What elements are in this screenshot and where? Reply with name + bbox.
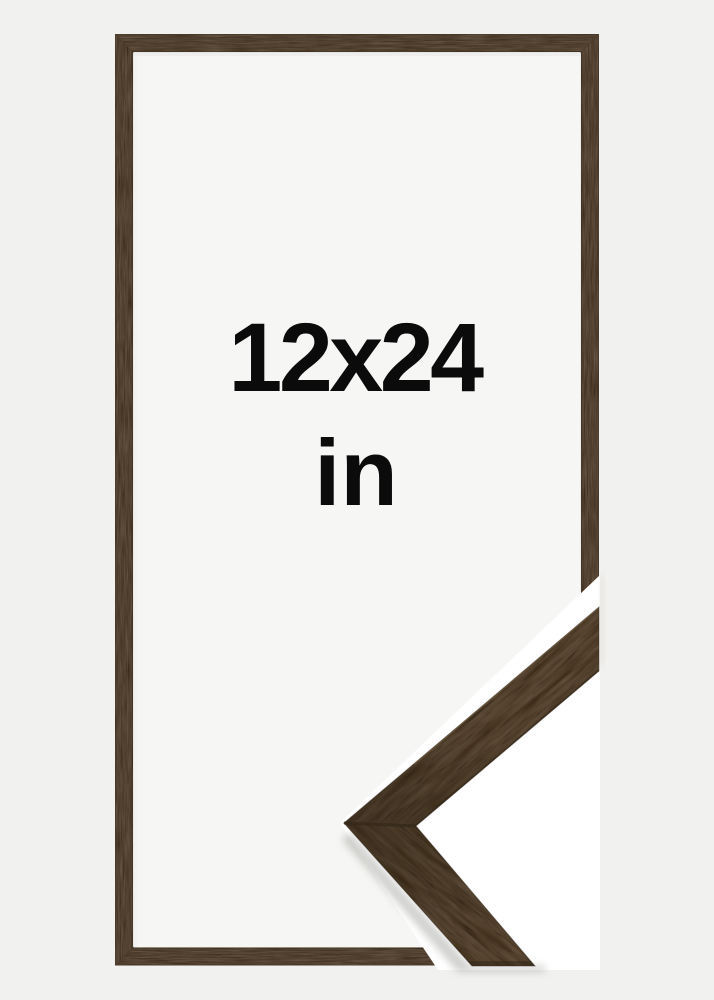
svg-text:12x24: 12x24: [228, 303, 484, 412]
svg-text:in: in: [314, 420, 398, 525]
